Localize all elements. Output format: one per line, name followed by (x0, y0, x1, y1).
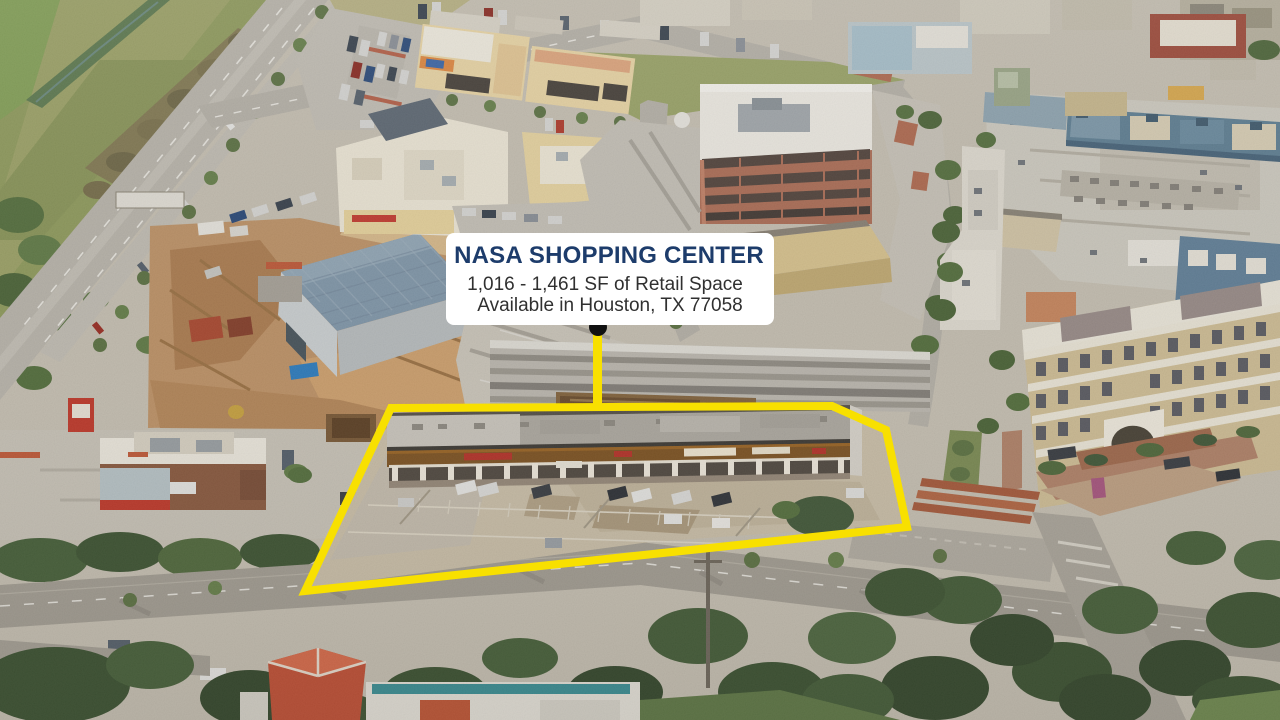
svg-text:1,016 - 1,461 SF of Retail Spa: 1,016 - 1,461 SF of Retail Space (467, 274, 743, 295)
svg-text:NASA SHOPPING CENTER: NASA SHOPPING CENTER (454, 242, 764, 269)
svg-text:Available in Houston, TX 77058: Available in Houston, TX 77058 (477, 295, 742, 316)
